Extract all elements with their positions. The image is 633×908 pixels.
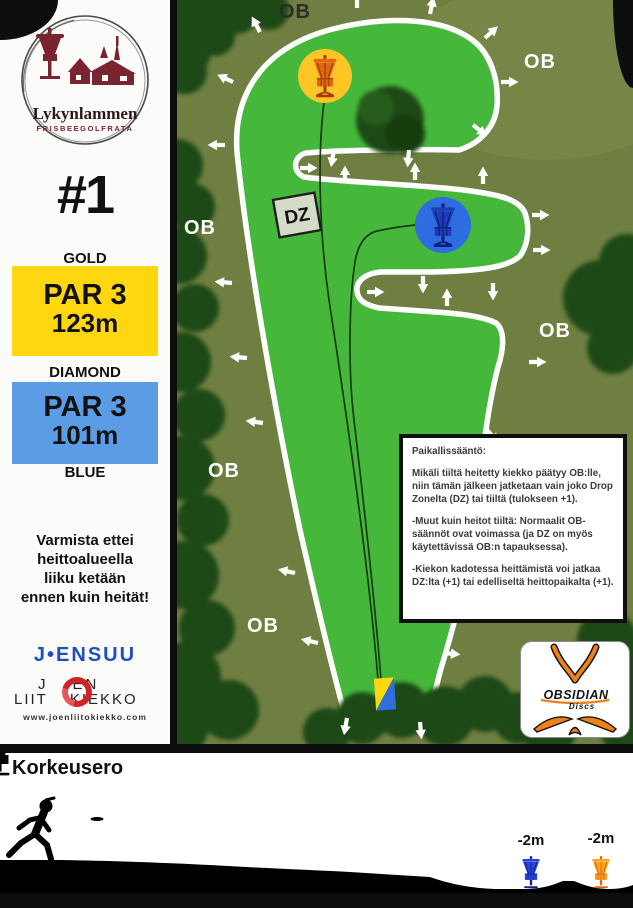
- blue-basket-marker: [415, 197, 471, 253]
- obsidian-name: OBSIDIAN: [521, 688, 631, 702]
- hole-map-poster: Lykynlammen FRISBEEGOLFRATA #1 GOLD PAR …: [0, 0, 633, 908]
- blue-tee-card: PAR 3 101m: [12, 382, 158, 464]
- course-logo: Lykynlammen FRISBEEGOLFRATA: [16, 12, 154, 154]
- flying-disc-icon: [91, 817, 104, 821]
- hole-map-art: OB OB OB OB OB OB DZ: [177, 0, 633, 744]
- tee-pad: [374, 677, 396, 710]
- ob-label: OB: [524, 51, 556, 73]
- info-panel: Lykynlammen FRISBEEGOLFRATA #1 GOLD PAR …: [0, 0, 170, 744]
- terrain-profile: [0, 860, 633, 893]
- club-website-url: www.joenliitokiekko.com: [0, 712, 170, 722]
- gold-par: PAR 3: [12, 280, 158, 310]
- ob-label: OB: [539, 320, 571, 342]
- hole-map: OB OB OB OB OB OB DZ: [177, 0, 633, 744]
- drop-zone-marker: DZ: [273, 193, 321, 238]
- obsidian-sub: Discs: [547, 702, 617, 711]
- logo-buildings: [68, 36, 136, 85]
- obsidian-discs-logo: OBSIDIAN Discs: [520, 641, 630, 738]
- gold-tee-card: PAR 3 123m: [12, 266, 158, 356]
- liitokiekko-club-logo: JEN LIITKIEKKO: [0, 674, 170, 714]
- elevation-panel: Korkeusero: [0, 753, 633, 893]
- ob-label: OB: [208, 460, 240, 482]
- logo-basket-icon: [36, 28, 64, 79]
- tee-tier-diamond: DIAMOND: [0, 364, 170, 381]
- local-rules-box: Paikallissääntö: Mikäli tiiltä heitetty …: [399, 434, 627, 623]
- tee-tier-blue-footer: BLUE: [0, 464, 170, 481]
- local-rules-paragraph: Mikäli tiiltä heitetty kiekko päätyy OB:…: [412, 467, 614, 506]
- club-logo-liit: LIIT: [14, 691, 48, 708]
- joensuu-city-logo: J•ENSUU: [0, 644, 170, 667]
- safety-warning-text: Varmista ettei heittoalueella liiku ketä…: [20, 532, 150, 608]
- ob-label: OB: [279, 1, 311, 23]
- ob-label: OB: [247, 615, 279, 637]
- local-rules-paragraph: -Kiekon kadotessa heittämistä voi jatkaa…: [412, 563, 614, 589]
- hole-number: #1: [0, 164, 170, 226]
- gold-distance: 123m: [12, 310, 158, 337]
- disc-golfer-silhouette: [9, 798, 54, 859]
- gold-basket-marker: [298, 49, 352, 103]
- blue-distance: 101m: [12, 422, 158, 449]
- elevation-marker-label: -2m: [588, 830, 615, 847]
- local-rules-paragraph: -Muut kuin heitot tiiltä: Normaalit OB-s…: [412, 515, 614, 554]
- elevation-blue-basket-icon: [522, 856, 539, 888]
- blue-par: PAR 3: [12, 392, 158, 422]
- tee-tier-gold: GOLD: [0, 250, 170, 267]
- elevation-profile-art: -2m -2m: [0, 753, 633, 893]
- elevation-marker-label: -2m: [518, 832, 545, 849]
- course-subtitle: FRISBEEGOLFRATA: [16, 124, 154, 133]
- elevation-gold-basket-icon: [592, 856, 609, 888]
- ob-label: OB: [184, 217, 216, 239]
- dz-label: DZ: [283, 204, 312, 229]
- local-rules-title: Paikallissääntö:: [412, 445, 614, 458]
- course-name: Lykynlammen: [16, 104, 154, 124]
